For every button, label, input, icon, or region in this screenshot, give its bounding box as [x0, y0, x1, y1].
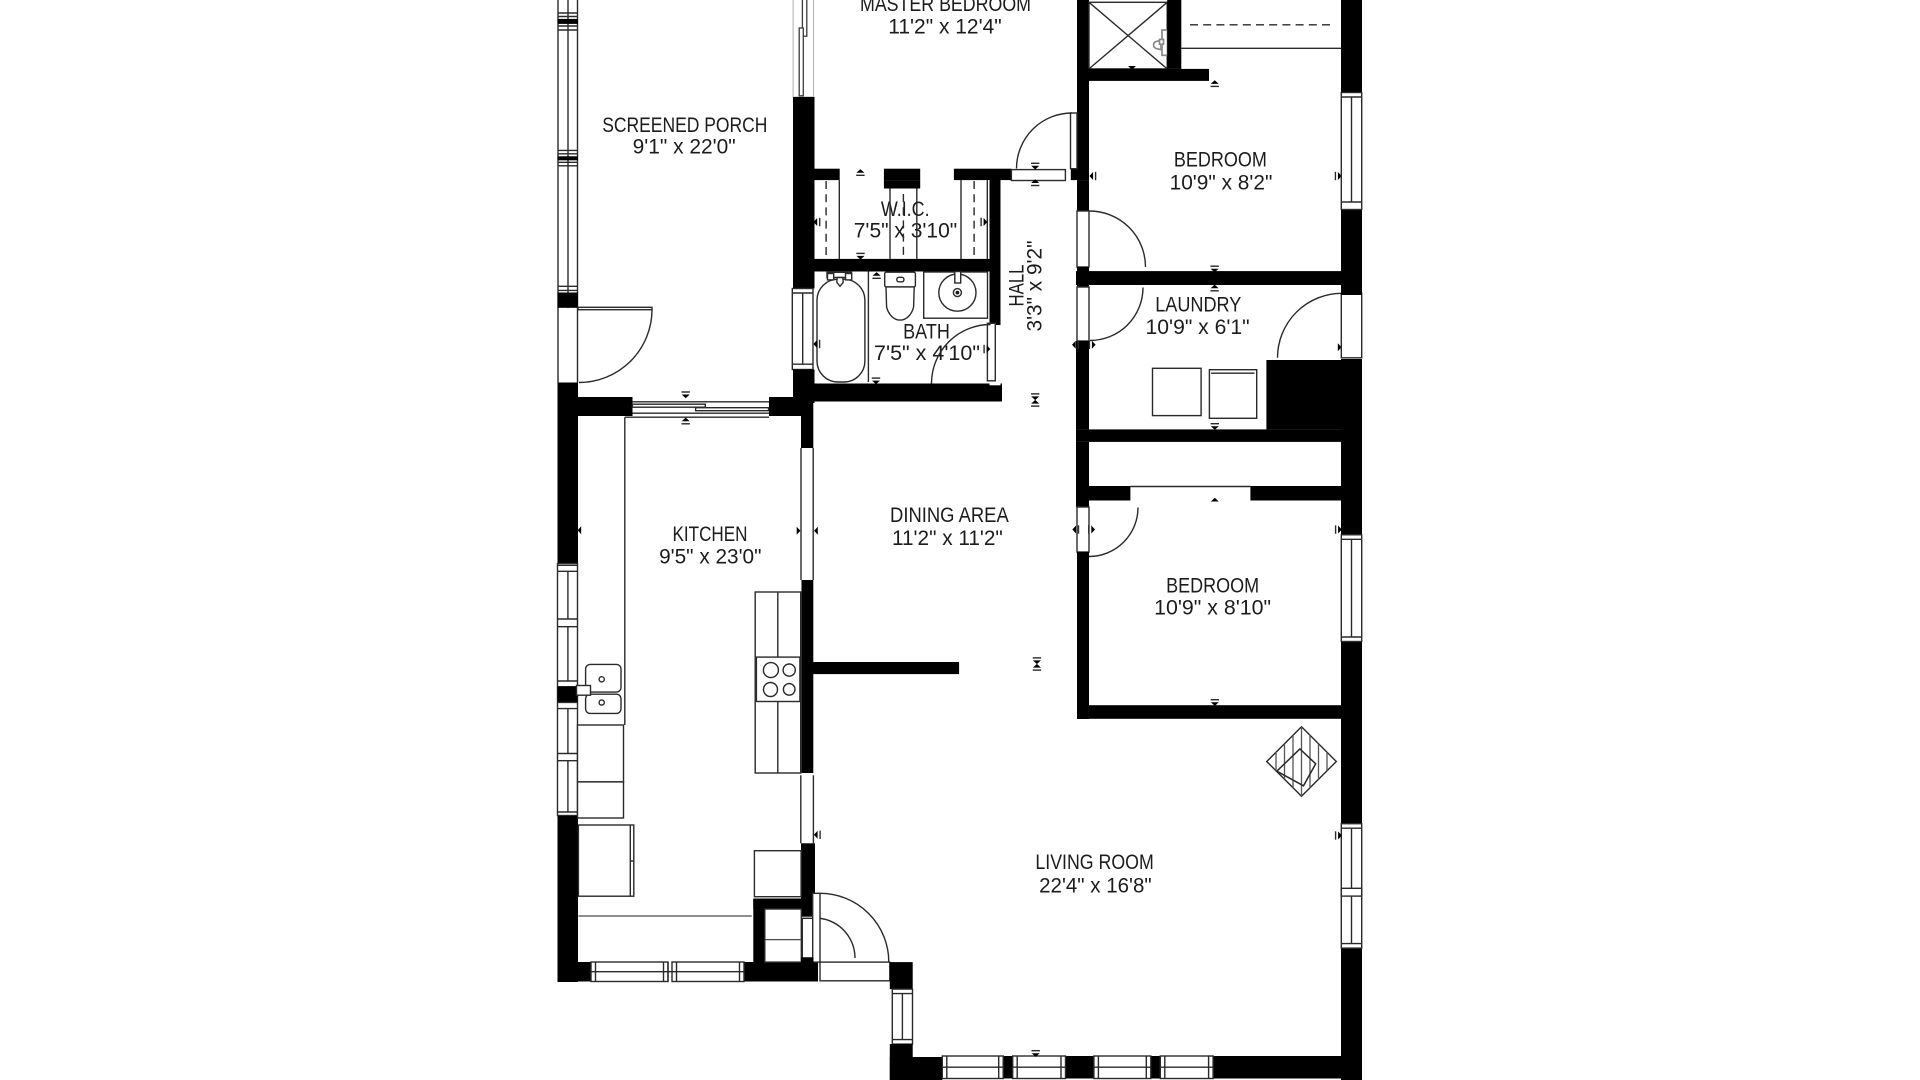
svg-text:KITCHEN: KITCHEN [673, 523, 748, 546]
svg-text:DINING AREA: DINING AREA [890, 504, 1009, 527]
svg-text:10'9" x 6'1": 10'9" x 6'1" [1146, 316, 1250, 339]
svg-text:9'1" x 22'0": 9'1" x 22'0" [633, 135, 736, 158]
svg-text:LIVING ROOM: LIVING ROOM [1035, 851, 1153, 874]
svg-text:7'5" x 4'10": 7'5" x 4'10" [874, 342, 980, 365]
svg-text:11'2" x 12'4": 11'2" x 12'4" [888, 16, 1001, 39]
svg-text:3'3" x 9'2": 3'3" x 9'2" [1024, 241, 1047, 332]
svg-text:SCREENED PORCH: SCREENED PORCH [602, 114, 767, 137]
svg-text:W.I.C.: W.I.C. [881, 198, 930, 221]
svg-text:7'5" x 3'10": 7'5" x 3'10" [854, 220, 958, 243]
svg-text:BATH: BATH [903, 320, 950, 343]
svg-text:LAUNDRY: LAUNDRY [1155, 293, 1241, 316]
svg-text:11'2" x 11'2": 11'2" x 11'2" [892, 527, 1003, 550]
svg-text:10'9" x 8'10": 10'9" x 8'10" [1154, 597, 1271, 620]
svg-text:BEDROOM: BEDROOM [1174, 149, 1267, 172]
svg-text:10'9" x 8'2": 10'9" x 8'2" [1170, 172, 1273, 195]
svg-text:22'4" x 16'8": 22'4" x 16'8" [1039, 875, 1152, 898]
svg-text:BEDROOM: BEDROOM [1166, 575, 1259, 598]
svg-text:MASTER BEDROOM: MASTER BEDROOM [860, 0, 1031, 16]
svg-text:9'5" x 23'0": 9'5" x 23'0" [659, 545, 761, 568]
